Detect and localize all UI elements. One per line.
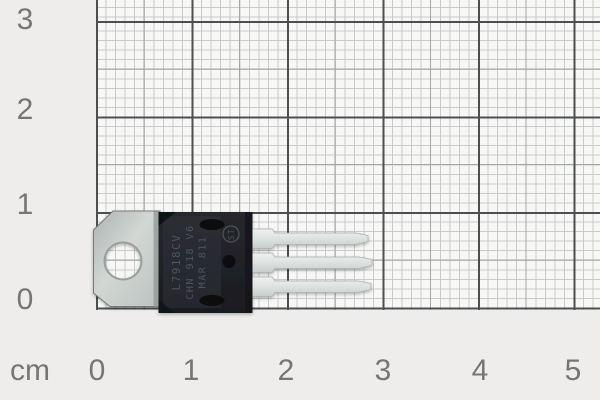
lead-top (252, 229, 368, 249)
mold-dimple-bottom (200, 295, 225, 306)
component-leads (252, 229, 372, 297)
st-logo-text: ST (227, 228, 236, 240)
marking-part-number: L7918CV (170, 234, 183, 291)
body-right-edge-shade (245, 212, 253, 313)
mold-dimple-top (200, 219, 225, 230)
metal-tab (94, 211, 161, 307)
photo-scene: 3 2 1 0 cm 0 1 2 3 4 5 (0, 0, 600, 400)
lead-middle (252, 253, 372, 273)
package-marking: L7918CV CHN 918 V6 MAR 811 (170, 224, 209, 299)
component-photo: ST L7918CV CHN 918 V6 MAR 811 (0, 0, 600, 400)
mounting-hole-rim (105, 243, 142, 280)
marking-lot-code: MAR 811 (198, 236, 209, 289)
marking-date-code: CHN 918 V6 (185, 224, 196, 299)
lead-bottom (252, 277, 371, 297)
ejector-pin-dot (223, 255, 236, 268)
